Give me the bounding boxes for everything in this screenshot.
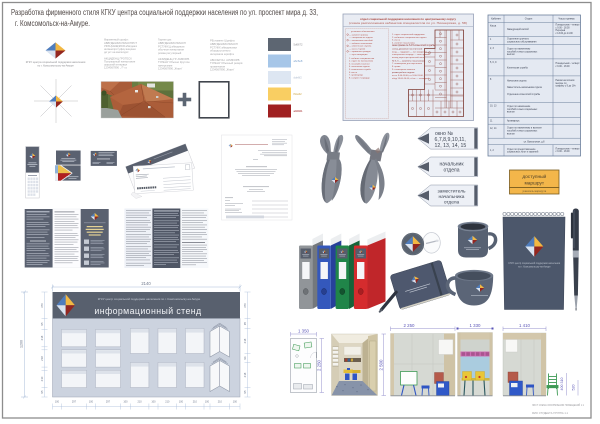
svg-text:выплат: выплат xyxy=(507,54,516,56)
svg-text:2. отдел по назначению: 2. отдел по назначению xyxy=(349,61,373,63)
svg-text:(схема расположения кабинетов: (схема расположения кабинетов специалист… xyxy=(349,21,467,25)
svg-text:— специалисты отдела: — специалисты отдела xyxy=(349,37,374,39)
svg-text:выплат: выплат xyxy=(507,112,516,114)
svg-text:электронная очередь — окно при: электронная очередь — окно приема, xyxy=(392,54,431,56)
svg-text:6,7,8,9,10,11,: 6,7,8,9,10,11, xyxy=(435,137,466,143)
svg-text:8. санузел / коридор: 8. санузел / коридор xyxy=(349,77,370,79)
svg-text:условные обозначения: условные обозначения xyxy=(351,31,375,33)
svg-text:6. касса: 6. касса xyxy=(349,72,358,74)
svg-text:520: 520 xyxy=(572,385,576,391)
svg-text:Понедельник - четверг: Понедельник - четверг xyxy=(556,148,580,150)
svg-text:по г. Комсомольску-на-Амуре: по г. Комсомольску-на-Амуре xyxy=(37,63,74,67)
svg-text:Фирменный шрифт:: Фирменный шрифт: xyxy=(104,38,129,42)
svg-text:1200: 1200 xyxy=(20,340,24,348)
svg-text:КГКУ центра социальной поддерж: КГКУ центра социальной поддержки населен… xyxy=(26,60,86,64)
svg-text:начальника: начальника xyxy=(439,195,465,200)
svg-text:2 500: 2 500 xyxy=(378,359,383,371)
svg-text:1. отдел социальной поддержки: 1. отдел социальной поддержки xyxy=(392,33,425,36)
svg-text:dde6f2: dde6f2 xyxy=(294,76,303,80)
svg-text:окно №: окно № xyxy=(435,131,453,137)
svg-text:интервала шрифта: интервала шрифта xyxy=(210,52,234,56)
svg-text:218: 218 xyxy=(243,338,247,343)
svg-text:Понедельник - четверг: Понедельник - четверг xyxy=(556,25,580,27)
svg-text:— пути эвакуации: — пути эвакуации xyxy=(349,54,368,56)
svg-text:№ 5, 6 — кабинеты начальников: № 5, 6 — кабинеты начальников xyxy=(392,59,426,62)
svg-text:— касса / архив: — касса / архив xyxy=(349,48,366,50)
svg-text:210: 210 xyxy=(138,401,143,404)
svg-text:социального обслуживания: социального обслуживания xyxy=(507,41,537,43)
svg-text:95: 95 xyxy=(243,390,247,394)
svg-text:указатель маршрута: указатель маршрута xyxy=(522,190,546,193)
svg-text:отдела: отдела xyxy=(443,168,459,174)
svg-text:Начальник отдела: Начальник отдела xyxy=(507,81,527,83)
svg-text:12, 13, 14, 15: 12, 13, 14, 15 xyxy=(435,143,467,149)
svg-text:начальник: начальник xyxy=(439,161,464,167)
svg-text:95: 95 xyxy=(243,322,247,326)
svg-text:Отдел по назначению: Отдел по назначению xyxy=(507,49,531,51)
svg-text:пособий и иных социальных: пособий и иных социальных xyxy=(507,50,538,53)
svg-text:графику с 9 до 18ч: графику с 9 до 18ч xyxy=(556,85,577,88)
svg-text:Касса: Касса xyxy=(490,26,497,28)
svg-text:1 350: 1 350 xyxy=(298,329,310,334)
svg-text:370: 370 xyxy=(40,303,44,308)
svg-text:с 9.00 - 18.00: с 9.00 - 18.00 xyxy=(556,151,571,153)
svg-text:заместитель: заместитель xyxy=(437,189,466,194)
svg-text:выплат: выплат xyxy=(507,133,516,135)
svg-text:1 330: 1 330 xyxy=(470,323,482,328)
svg-text:отдела: отдела xyxy=(444,200,460,205)
svg-text:5, 6, 9: 5, 6, 9 xyxy=(490,62,497,64)
svg-text:Отдел по назначению и выплате: Отдел по назначению и выплате xyxy=(507,128,543,130)
svg-text:пн-чт 9.00-18.00, пт 9.00-13.0: пн-чт 9.00-18.00, пт 9.00-13.00, xyxy=(392,75,424,77)
svg-text:2. кабинеты специалистов отдел: 2. кабинеты специалистов отдела xyxy=(392,37,427,39)
svg-text:социальных льгот и гарантий: социальных льгот и гарантий xyxy=(507,151,539,154)
svg-text:ЛИСТ СХЕМА ОФОРМЛЕНИЯ ПОМЕЩЕНИ: ЛИСТ СХЕМА ОФОРМЛЕНИЯ ПОМЕЩЕНИЙ 1:1 xyxy=(532,403,584,407)
svg-text:РЕгламент Шрифта: РЕгламент Шрифта xyxy=(210,39,235,43)
svg-text:— приемная граждан: — приемная граждан xyxy=(349,51,372,53)
svg-text:370: 370 xyxy=(243,303,247,308)
svg-text:1234567890 „Жирн“: 1234567890 „Жирн“ xyxy=(158,67,183,71)
svg-text:7. помещение для персонала: 7. помещение для персонала xyxy=(392,63,423,65)
svg-text:Архивариус: Архивариус xyxy=(507,120,520,123)
svg-text:4. начальник отдела: 4. начальник отдела xyxy=(349,66,370,68)
svg-text:отдел социальной поддержки нас: отдел социальной поддержки населения по … xyxy=(360,17,456,21)
svg-text:Кабинет: Кабинет xyxy=(491,17,502,21)
svg-text:100: 100 xyxy=(205,401,210,404)
svg-text:8. архив: 8. архив xyxy=(392,66,401,68)
svg-text:Отделение клиентской службы: Отделение клиентской службы xyxy=(507,93,541,96)
svg-text:Отделение срочного: Отделение срочного xyxy=(507,39,530,41)
svg-text:Заведующий кассой: Заведующий кассой xyxy=(507,28,529,31)
svg-text:доступный: доступный xyxy=(522,173,546,180)
svg-text:Заместитель начальника отдела: Заместитель начальника отдела xyxy=(507,87,543,89)
svg-text:с 13.00 до 14.00: с 13.00 до 14.00 xyxy=(556,33,574,35)
svg-text:3. касса: 3. касса xyxy=(392,40,401,42)
svg-text:г. Комсомольск-на-Амуре.: г. Комсомольск-на-Амуре. xyxy=(15,19,90,28)
svg-text:Отдел по предоставлению: Отдел по предоставлению xyxy=(507,149,536,151)
svg-text:Понедельник - четверг: Понедельник - четверг xyxy=(556,63,580,65)
svg-text:a6c6e8: a6c6e8 xyxy=(294,59,303,63)
svg-text:100: 100 xyxy=(55,401,60,404)
svg-text:a02021: a02021 xyxy=(294,109,303,113)
svg-text:100: 100 xyxy=(179,401,184,404)
svg-text:окна приема № 6-15 клиентской: окна приема № 6-15 клиентской службы xyxy=(392,44,436,47)
svg-text:400 310: 400 310 xyxy=(560,378,564,391)
svg-text:95: 95 xyxy=(40,390,44,394)
svg-text:— назначения пособий: — назначения пособий xyxy=(349,39,373,42)
svg-text:с 9.00 - 18.00: с 9.00 - 18.00 xyxy=(556,66,571,68)
svg-text:Разработка фирменного стиля КГ: Разработка фирменного стиля КГКУ центра … xyxy=(11,8,318,17)
svg-text:f9ce62: f9ce62 xyxy=(294,92,303,96)
svg-text:100: 100 xyxy=(123,401,128,404)
svg-text:с 9.00 - 18.00: с 9.00 - 18.00 xyxy=(556,27,571,29)
svg-text:210: 210 xyxy=(40,376,44,381)
svg-text:210: 210 xyxy=(193,401,198,404)
svg-text:3. пособий и выплат: 3. пособий и выплат xyxy=(349,62,370,65)
svg-text:выход через центральный холл: выход через центральный холл xyxy=(392,56,425,59)
svg-text:95: 95 xyxy=(40,322,44,326)
svg-text:Часы приема: Часы приема xyxy=(558,17,575,21)
svg-text:9. санитарная комната: 9. санитарная комната xyxy=(392,69,416,71)
svg-text:1234567890 „Жирн“: 1234567890 „Жирн“ xyxy=(210,68,235,72)
svg-text:7. архивариус: 7. архивариус xyxy=(349,75,364,77)
svg-text:ул. Вокзальная, д.8: ул. Вокзальная, д.8 xyxy=(524,141,545,143)
svg-text:Гарнитура:: Гарнитура: xyxy=(158,38,172,42)
svg-text:Перерыв: Перерыв xyxy=(556,30,566,32)
svg-text:297: 297 xyxy=(72,401,77,404)
svg-text:до укт на мнлжлдит: до укт на мнлжлдит xyxy=(104,51,129,54)
svg-text:— кабинет приема: — кабинет приема xyxy=(349,34,369,36)
svg-text:месяце по: месяце по xyxy=(556,83,568,85)
svg-text:2 250: 2 250 xyxy=(404,323,416,328)
svg-text:96: 96 xyxy=(243,356,247,360)
svg-text:Отдел по назначению: Отдел по назначению xyxy=(507,106,531,108)
svg-text:маршрут: маршрут xyxy=(524,181,544,186)
svg-text:2140: 2140 xyxy=(141,281,151,286)
svg-text:218: 218 xyxy=(243,372,247,377)
svg-text:— клиентская служба: — клиентская служба xyxy=(349,46,372,48)
svg-text:210: 210 xyxy=(165,401,170,404)
svg-text:297: 297 xyxy=(106,401,111,404)
svg-text:— кабинет начальника: — кабинет начальника xyxy=(349,43,373,45)
svg-text:2 250: 2 250 xyxy=(316,359,321,371)
svg-text:Клиентская служба: Клиентская служба xyxy=(507,68,528,70)
svg-text:218: 218 xyxy=(40,335,44,340)
svg-text:10, 13: 10, 13 xyxy=(490,106,497,108)
svg-text:пособий и иных социальных: пособий и иных социальных xyxy=(507,130,538,133)
svg-text:12, 14: 12, 14 xyxy=(490,128,497,130)
svg-text:КГКУ центр социальной поддержк: КГКУ центр социальной поддержки населени… xyxy=(98,297,201,301)
svg-text:схема движения посетителей:: схема движения посетителей: xyxy=(392,48,423,51)
svg-text:Отдел: Отдел xyxy=(525,17,533,21)
svg-text:1234567890 .,!? «»: 1234567890 .,!? «» xyxy=(104,66,128,70)
svg-text:100: 100 xyxy=(89,401,94,404)
svg-text:роман регулярный: роман регулярный xyxy=(158,51,182,55)
svg-text:пособий и иных социальных: пособий и иных социальных xyxy=(507,108,538,111)
svg-text:100: 100 xyxy=(151,401,156,404)
svg-text:Режим на полном: Режим на полном xyxy=(556,80,575,82)
svg-text:информационный стенд: информационный стенд xyxy=(94,306,201,316)
svg-text:5. клиентская служба: 5. клиентская служба xyxy=(349,69,372,71)
svg-text:4. кабинет начальника: 4. кабинет начальника xyxy=(392,42,416,44)
svg-text:1 410: 1 410 xyxy=(519,323,531,328)
svg-text:5d6672: 5d6672 xyxy=(294,43,303,47)
svg-text:1. кабинет специалистов: 1. кабинет специалистов xyxy=(349,58,375,60)
svg-text:210: 210 xyxy=(218,401,223,404)
svg-text:режим работы отдела:: режим работы отдела: xyxy=(392,72,415,74)
svg-text:100: 100 xyxy=(233,401,238,404)
svg-text:по г. Комсомольску-на-Амуре: по г. Комсомольску-на-Амуре xyxy=(518,266,551,269)
svg-text:ФИО СТУДЕНТА ГРУППА 1.1: ФИО СТУДЕНТА ГРУППА 1.1 xyxy=(532,411,568,415)
svg-text:218: 218 xyxy=(40,356,44,361)
